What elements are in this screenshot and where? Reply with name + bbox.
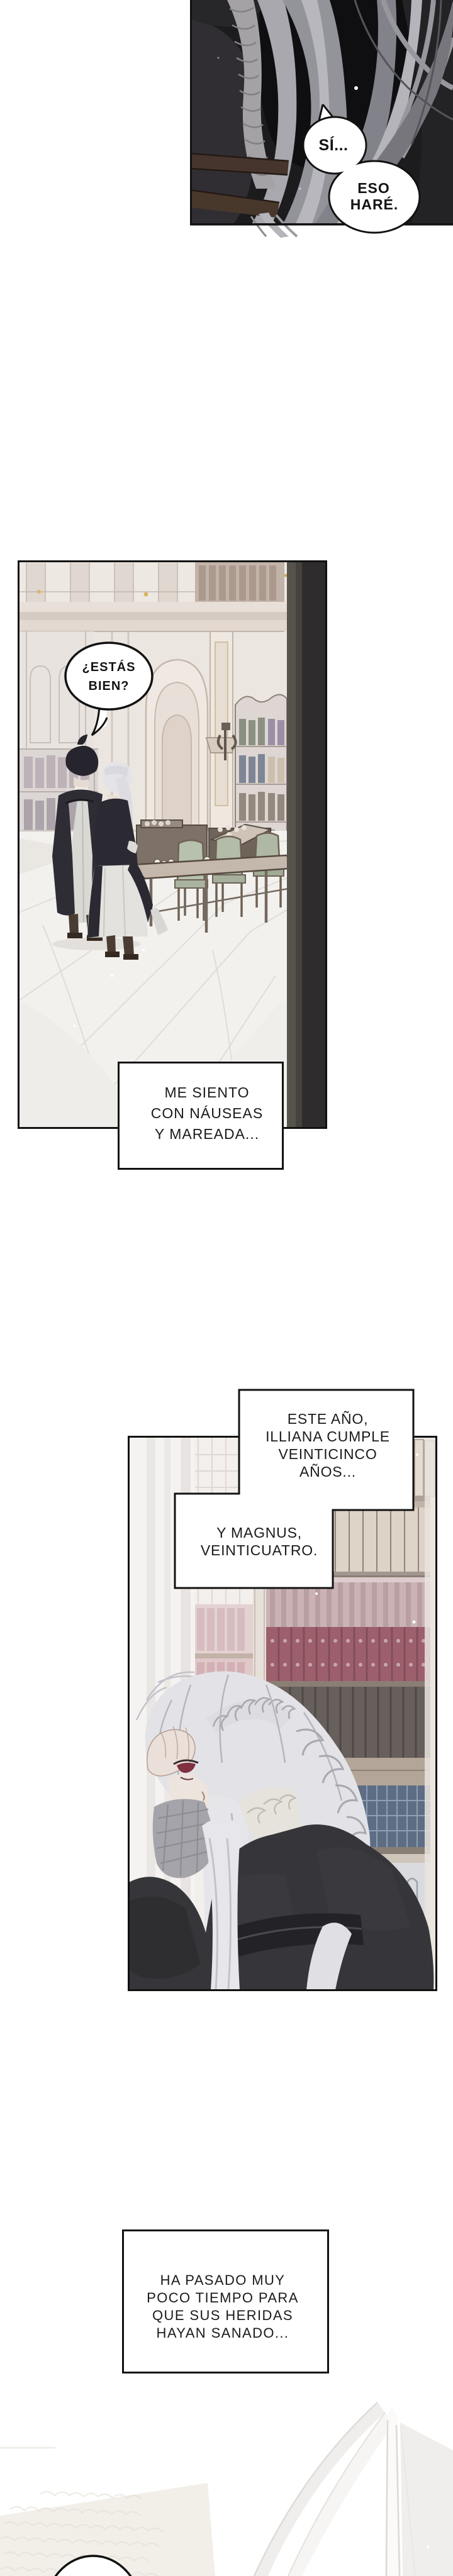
svg-text:VEINTICUATRO.: VEINTICUATRO. <box>201 1542 318 1558</box>
svg-text:AÑOS...: AÑOS... <box>299 1463 356 1480</box>
svg-text:VEINTICINCO: VEINTICINCO <box>278 1446 377 1462</box>
svg-text:ILLIANA CUMPLE: ILLIANA CUMPLE <box>266 1428 390 1445</box>
svg-text:BIEN?: BIEN? <box>89 679 130 693</box>
svg-text:¿ESTÁS: ¿ESTÁS <box>82 660 136 674</box>
svg-text:ESO: ESO <box>357 180 390 196</box>
svg-text:ESTE AÑO,: ESTE AÑO, <box>288 1411 369 1427</box>
svg-text:Y MAGNUS,: Y MAGNUS, <box>216 1524 302 1541</box>
svg-text:SÍ...: SÍ... <box>319 136 349 154</box>
svg-text:HARÉ.: HARÉ. <box>350 196 399 213</box>
